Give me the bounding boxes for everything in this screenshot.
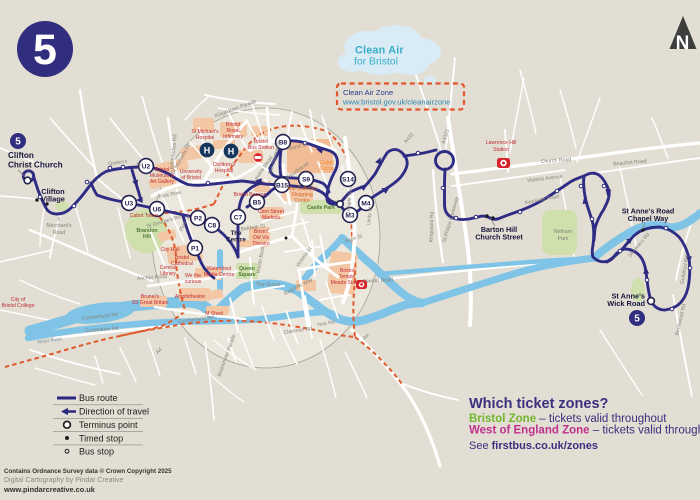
svg-text:Netham: Netham (554, 229, 572, 235)
svg-text:Bus route: Bus route (79, 393, 118, 403)
svg-text:Amphitheatre: Amphitheatre (175, 294, 205, 300)
svg-text:Circus: Circus (320, 166, 335, 172)
svg-text:S9: S9 (302, 176, 310, 183)
svg-text:Kingsland Rd: Kingsland Rd (428, 211, 435, 242)
svg-text:Which ticket zones?: Which ticket zones? (469, 396, 609, 412)
svg-text:Hill: Hill (143, 234, 152, 240)
svg-text:Markets: Markets (262, 215, 281, 221)
svg-text:Contains Ordnance Survey data: Contains Ordnance Survey data © Crown Co… (4, 468, 172, 475)
svg-text:Centre: Centre (226, 237, 246, 244)
svg-text:M4: M4 (361, 200, 370, 207)
svg-text:curious: curious (185, 279, 202, 285)
svg-text:Lawrence Hill: Lawrence Hill (486, 140, 517, 146)
svg-text:Bus Station: Bus Station (248, 145, 274, 151)
svg-text:Direction of travel: Direction of travel (79, 407, 149, 417)
svg-text:City Hall: City Hall (161, 247, 180, 253)
svg-text:SS Great Britain: SS Great Britain (132, 300, 169, 306)
svg-text:5: 5 (15, 137, 21, 148)
svg-text:H: H (204, 145, 211, 155)
svg-text:Bristol Zone – tickets valid t: Bristol Zone – tickets valid throughout (469, 413, 667, 425)
svg-text:Castle Park: Castle Park (307, 205, 335, 211)
svg-text:Christ Church: Christ Church (8, 161, 63, 170)
svg-text:5: 5 (33, 26, 57, 74)
svg-text:West of England Zone – tickets: West of England Zone – tickets valid thr… (469, 425, 700, 437)
svg-text:Station: Station (493, 147, 509, 153)
svg-text:Art Gallery: Art Gallery (150, 179, 175, 185)
svg-text:Bristol College: Bristol College (2, 303, 35, 309)
svg-text:Timed stop: Timed stop (79, 433, 123, 443)
svg-text:Park: Park (558, 236, 569, 242)
svg-text:www.pindarcreative.co.uk: www.pindarcreative.co.uk (3, 485, 96, 494)
svg-text:B5: B5 (253, 199, 262, 206)
svg-text:5: 5 (634, 314, 640, 325)
svg-text:Cabot Tower: Cabot Tower (130, 213, 159, 219)
svg-text:The Grove: The Grove (256, 282, 281, 288)
svg-text:Chapel Way: Chapel Way (628, 214, 668, 223)
svg-text:See firstbus.co.uk/zones: See firstbus.co.uk/zones (469, 440, 598, 452)
svg-text:Village: Village (41, 195, 65, 204)
svg-text:Meads Station: Meads Station (331, 280, 364, 286)
svg-text:Bus stop: Bus stop (79, 447, 114, 457)
svg-text:www.bristol.gov.uk/cleanairzon: www.bristol.gov.uk/cleanairzone (342, 98, 451, 107)
svg-text:U3: U3 (125, 200, 134, 207)
svg-text:Centre: Centre (294, 198, 309, 204)
svg-text:Terminus point: Terminus point (79, 420, 138, 430)
svg-text:Road: Road (53, 230, 66, 236)
svg-text:Merchant's: Merchant's (46, 223, 72, 229)
svg-text:N: N (676, 33, 690, 54)
svg-text:H: H (228, 146, 235, 156)
svg-text:C7: C7 (234, 214, 243, 221)
svg-text:P2: P2 (194, 215, 202, 222)
svg-text:Square: Square (238, 272, 255, 278)
svg-text:Clean Air: Clean Air (355, 45, 404, 57)
svg-text:Rd: Rd (136, 162, 144, 169)
svg-text:S14: S14 (342, 176, 354, 183)
svg-text:Digital Cartography by Pindar: Digital Cartography by Pindar Creative (4, 477, 124, 484)
svg-text:P1: P1 (191, 245, 199, 252)
svg-text:of Bristol: of Bristol (181, 175, 201, 181)
svg-text:Hospital: Hospital (196, 135, 214, 141)
svg-text:C8: C8 (208, 222, 217, 229)
svg-text:Clean Air Zone: Clean Air Zone (343, 88, 393, 97)
svg-text:Clifton: Clifton (8, 151, 34, 160)
svg-text:for Bristol: for Bristol (354, 57, 398, 68)
svg-text:Infirmary: Infirmary (223, 134, 243, 140)
svg-text:Media Centre: Media Centre (204, 272, 235, 278)
svg-text:Bristol Beacon: Bristol Beacon (234, 192, 267, 198)
svg-text:Church Street: Church Street (475, 233, 523, 242)
svg-text:Hospital: Hospital (215, 168, 233, 174)
svg-text:Wick Road: Wick Road (607, 299, 645, 308)
